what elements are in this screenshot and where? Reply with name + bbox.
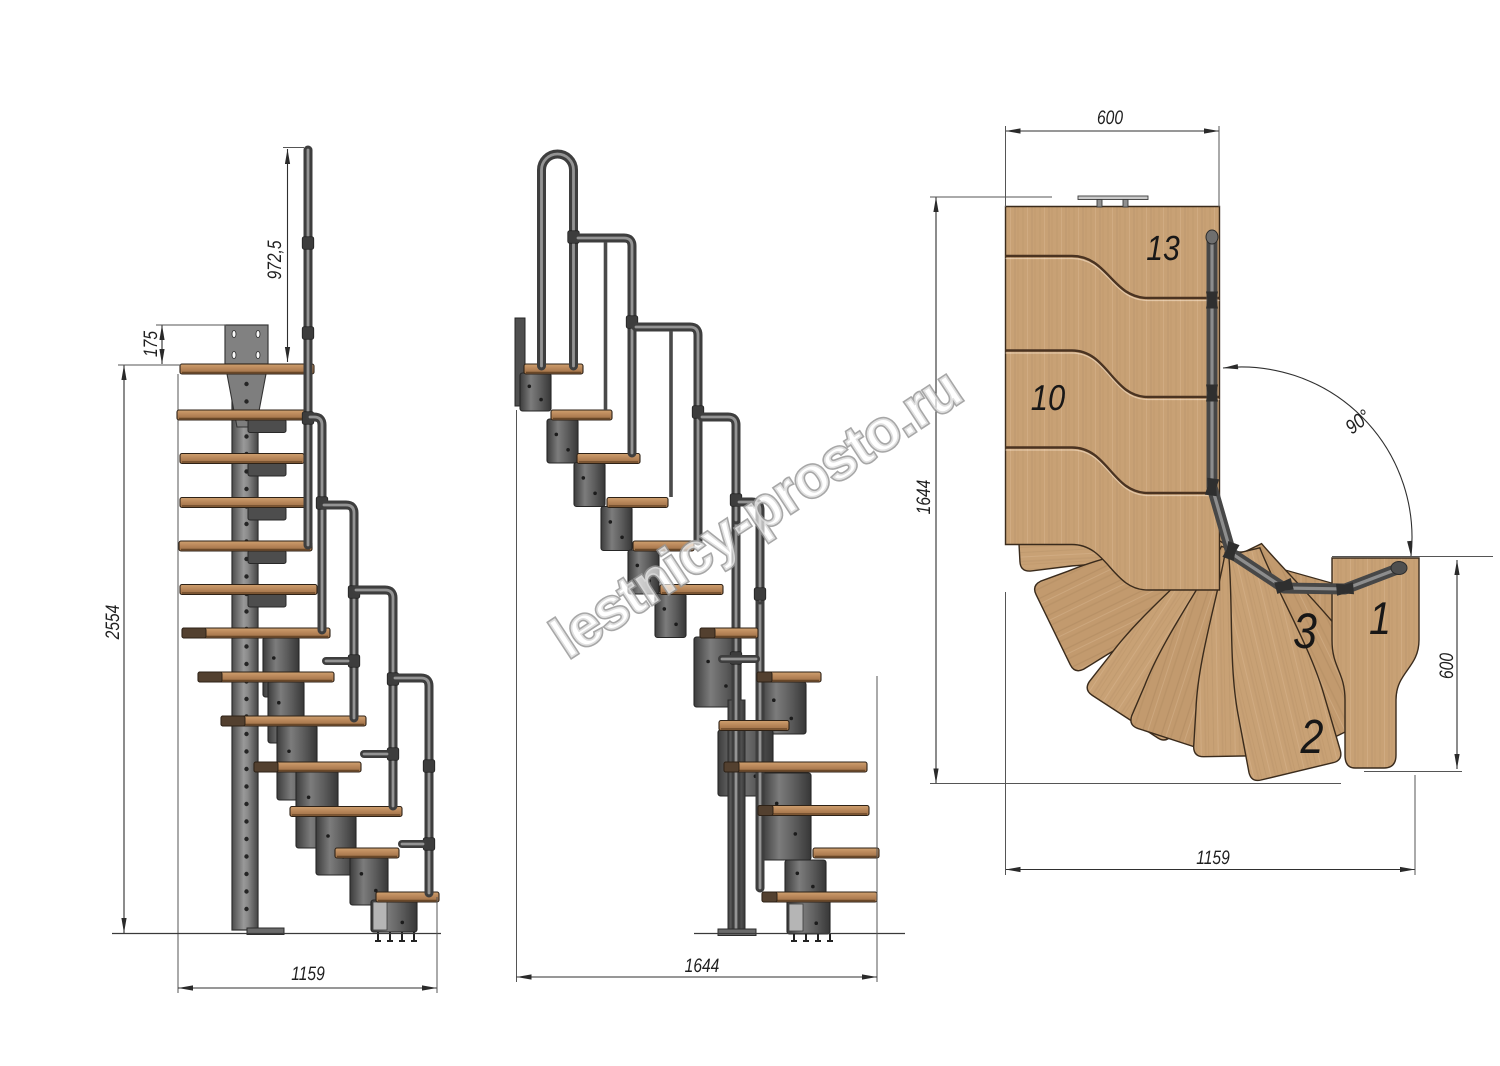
svg-text:175: 175 bbox=[140, 331, 162, 357]
svg-text:972,5: 972,5 bbox=[264, 240, 286, 279]
svg-text:1: 1 bbox=[1369, 592, 1391, 644]
svg-text:600: 600 bbox=[1436, 653, 1458, 679]
svg-text:1159: 1159 bbox=[1196, 847, 1230, 869]
svg-text:10: 10 bbox=[1031, 377, 1065, 418]
svg-text:600: 600 bbox=[1097, 107, 1123, 129]
svg-text:1644: 1644 bbox=[913, 480, 935, 515]
svg-text:3: 3 bbox=[1293, 603, 1317, 659]
svg-text:2554: 2554 bbox=[102, 605, 124, 641]
svg-text:2: 2 bbox=[1300, 711, 1324, 764]
svg-text:1159: 1159 bbox=[291, 963, 325, 985]
svg-text:13: 13 bbox=[1146, 229, 1180, 268]
svg-text:1644: 1644 bbox=[685, 955, 720, 977]
